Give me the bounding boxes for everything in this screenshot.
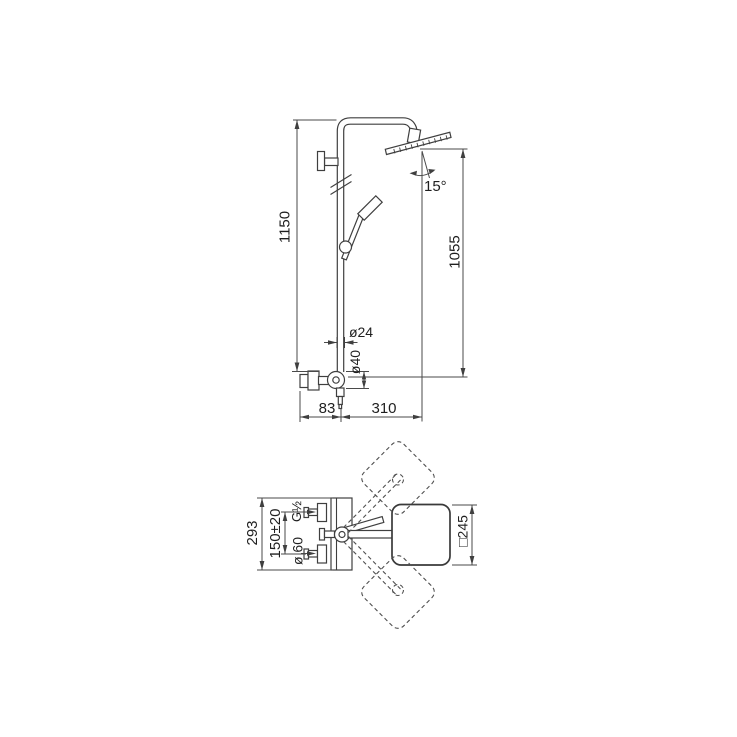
hand-shower-head — [358, 196, 382, 220]
valve-hub-top — [339, 532, 345, 538]
dim-bottom-offsets: 83 310 — [300, 391, 422, 422]
label-head-height: 1055 — [446, 235, 463, 268]
dim-head-height: 1055 — [348, 149, 468, 377]
hand-shower — [340, 196, 383, 260]
dim-head-size: □245 — [452, 505, 477, 565]
label-wall-offset: 83 — [319, 400, 336, 417]
dim-valve-diameter: ø40 — [346, 350, 369, 389]
dim-inlet-thread: G½ — [289, 501, 316, 522]
label-plate-width: 293 — [244, 520, 261, 545]
dim-riser-diameter: ø24 — [324, 324, 373, 348]
top-view: 293 150±20 G½ ø 60 — [244, 438, 477, 631]
hose-outlet-nipple — [338, 397, 342, 405]
label-head-reach: 310 — [371, 400, 396, 417]
label-head-size: □245 — [454, 515, 470, 547]
valve-handle-cap — [300, 375, 308, 388]
shower-column-technical-drawing: 1150 1055 15° — [0, 0, 737, 737]
valve-handle — [308, 371, 319, 390]
label-head-tilt-angle: 15° — [424, 178, 447, 195]
label-valve-diameter: ø40 — [347, 350, 363, 374]
hose-outlet-tip — [339, 405, 342, 409]
label-rosette-diameter: ø 60 — [289, 537, 305, 565]
label-inlet-spacing: 150±20 — [267, 509, 284, 559]
label-inlet-thread: G½ — [289, 501, 304, 522]
wall-bracket — [318, 152, 339, 171]
front-view: 1150 1055 15° — [276, 120, 467, 422]
technical-drawing-page: 1150 1055 15° — [0, 0, 737, 737]
label-total-height: 1150 — [276, 211, 293, 243]
dim-head-tilt: 15° — [410, 151, 447, 422]
label-riser-diameter: ø24 — [349, 324, 373, 340]
valve-body-hub — [333, 377, 339, 383]
hose-outlet — [337, 388, 345, 397]
hand-shower-holder — [340, 241, 352, 253]
